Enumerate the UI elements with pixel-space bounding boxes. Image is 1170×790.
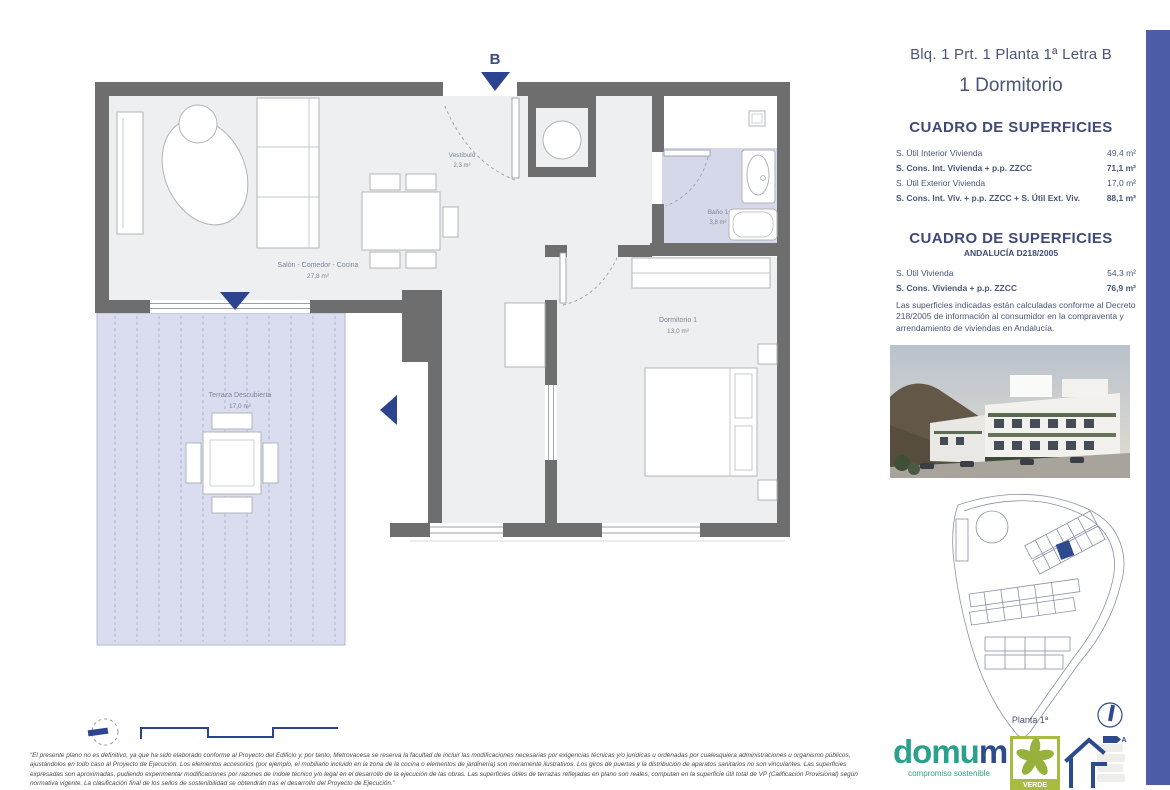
- sofa: [257, 98, 319, 248]
- row-value: 76,9 m²: [1107, 281, 1136, 296]
- bedroom-door-leaf: [560, 253, 566, 303]
- siteplan-label: Planta 1ª: [1012, 715, 1049, 725]
- scale-bar: [141, 728, 338, 739]
- entrance-door-leaf: [512, 98, 519, 178]
- surface-table2-heading: CUADRO DE SUPERFICIES: [882, 230, 1140, 247]
- floorplan-sheet: { "plan": { "entrance_label": "B", "room…: [0, 0, 1170, 785]
- bathroom-door-leaf: [664, 150, 710, 156]
- room-label-bano: Baño 1: [708, 209, 729, 216]
- row-label: S. Cons. Vivienda + p.p. ZZCC: [896, 281, 1017, 296]
- entrance-label: B: [490, 51, 501, 68]
- surface-table2-subheading: ANDALUCÍA D218/2005: [882, 248, 1140, 258]
- room-label-terraza: Terraza Descubierta: [209, 392, 272, 399]
- tree: [908, 463, 920, 475]
- verde-label: VERDE: [1023, 782, 1047, 789]
- row-value: 54,3 m²: [1107, 266, 1136, 281]
- room-area-bano: 3,8 m²: [709, 220, 726, 226]
- site-block: [956, 519, 968, 561]
- room-area-vestibulo: 2,3 m²: [453, 163, 470, 169]
- row-value: 71,1 m²: [1107, 161, 1136, 176]
- domum-logo: domum compromiso sostenible: [893, 737, 1005, 778]
- entrance-arrow-icon: [481, 72, 510, 91]
- domum-tagline: compromiso sostenible: [893, 769, 1005, 778]
- bedroom-window: [602, 523, 700, 537]
- side-accent-bar: [1146, 30, 1170, 785]
- surface-table: S. Útil Interior Vivienda49,4 m² S. Cons…: [882, 146, 1140, 206]
- page-subtitle: 1 Dormitorio: [882, 75, 1140, 97]
- sink: [742, 150, 775, 203]
- room-area-dormitorio: 13,0 m²: [667, 328, 690, 335]
- row-label: S. Útil Interior Vivienda: [896, 146, 982, 161]
- table-row: S. Cons. Int. Vivienda + p.p. ZZCC71,1 m…: [896, 161, 1136, 176]
- row-label: S. Útil Exterior Vivienda: [896, 176, 985, 191]
- page-title: Blq. 1 Prt. 1 Planta 1ª Letra B: [882, 46, 1140, 63]
- row-label: S. Cons. Int. Vivienda + p.p. ZZCC: [896, 161, 1032, 176]
- verde-logo: VERDE: [1010, 736, 1060, 790]
- room-label-dormitorio: Dormitorio 1: [659, 317, 697, 324]
- table-row: S. Útil Vivienda54,3 m²: [896, 266, 1136, 281]
- info-panel: Blq. 1 Prt. 1 Planta 1ª Letra B 1 Dormit…: [882, 46, 1140, 334]
- rating-arrow-icon: [1103, 736, 1121, 743]
- site-plan: Planta 1ª: [930, 487, 1155, 737]
- tv-unit: [117, 112, 143, 234]
- row-value: 88,1 m²: [1107, 191, 1136, 206]
- side-access-arrow-icon: [380, 395, 397, 425]
- row-value: 17,0 m²: [1107, 176, 1136, 191]
- north-compass-icon: [1098, 703, 1122, 727]
- kitchen-counter: [505, 303, 545, 367]
- wardrobe: [632, 258, 770, 288]
- bedroom-wall-glazing: [545, 385, 557, 460]
- wall-register: [749, 111, 765, 126]
- bathtub: [729, 209, 777, 240]
- site-pond: [976, 511, 1008, 543]
- energy-letter: A: [1121, 737, 1126, 744]
- utility-closet: [543, 121, 581, 159]
- energy-rating-house-icon: A: [1063, 730, 1127, 788]
- room-area-terraza: 17,0 m²: [229, 403, 252, 410]
- table-row: S. Útil Interior Vivienda49,4 m²: [896, 146, 1136, 161]
- kitchen-window: [428, 523, 503, 537]
- table-row: S. Cons. Vivienda + p.p. ZZCC76,9 m²: [896, 281, 1136, 296]
- site-block-lower: [985, 637, 1070, 669]
- washer-icon: [543, 121, 581, 159]
- site-block-middle: [967, 579, 1082, 625]
- row-value: 49,4 m²: [1107, 146, 1136, 161]
- room-label-salon: Salón - Comedor - Cocina: [278, 262, 359, 269]
- surface-table2: S. Útil Vivienda54,3 m² S. Cons. Viviend…: [882, 266, 1140, 296]
- domum-wordmark-end: m: [979, 733, 1007, 770]
- row-label: S. Cons. Int. Viv. + p.p. ZZCC + S. Útil…: [896, 191, 1080, 206]
- terrace: [97, 313, 345, 645]
- room-label-vestibulo: Vestíbulo: [449, 152, 476, 159]
- nightstand: [758, 480, 777, 500]
- building-render-image: [890, 345, 1130, 478]
- nightstand: [758, 344, 777, 364]
- plan-compass-icon: [88, 719, 118, 745]
- legal-disclaimer: “El presente plano no es definitivo, ya …: [30, 751, 875, 788]
- table-row: S. Útil Exterior Vivienda17,0 m²: [896, 176, 1136, 191]
- table-row: S. Cons. Int. Viv. + p.p. ZZCC + S. Útil…: [896, 191, 1136, 206]
- tree: [894, 455, 910, 471]
- decree-note: Las superficies indicadas están calculad…: [882, 300, 1140, 334]
- room-area-salon: 27,8 m²: [307, 273, 330, 280]
- domum-wordmark: domu: [893, 733, 979, 770]
- surface-table-heading: CUADRO DE SUPERFICIES: [882, 119, 1140, 136]
- row-label: S. Útil Vivienda: [896, 266, 953, 281]
- bed: [645, 368, 757, 476]
